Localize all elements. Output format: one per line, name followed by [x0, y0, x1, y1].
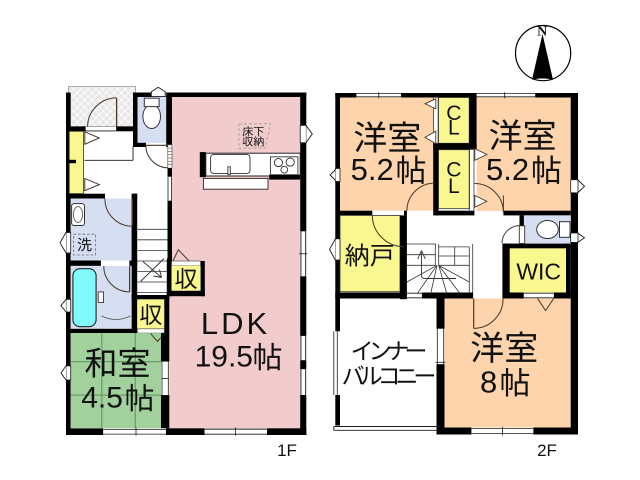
svg-text:5.2: 5.2	[351, 152, 394, 187]
svg-text:1F: 1F	[277, 441, 297, 460]
svg-text:8: 8	[480, 365, 497, 400]
svg-text:WIC: WIC	[516, 259, 561, 285]
svg-text:LDK: LDK	[201, 306, 270, 341]
svg-text:19.5: 19.5	[195, 341, 253, 374]
svg-text:2F: 2F	[537, 441, 557, 460]
svg-text:N: N	[537, 24, 547, 39]
svg-text:L: L	[448, 175, 460, 198]
svg-text:4.5: 4.5	[81, 382, 123, 415]
svg-text:5.2: 5.2	[486, 152, 529, 187]
svg-text:L: L	[448, 117, 460, 140]
